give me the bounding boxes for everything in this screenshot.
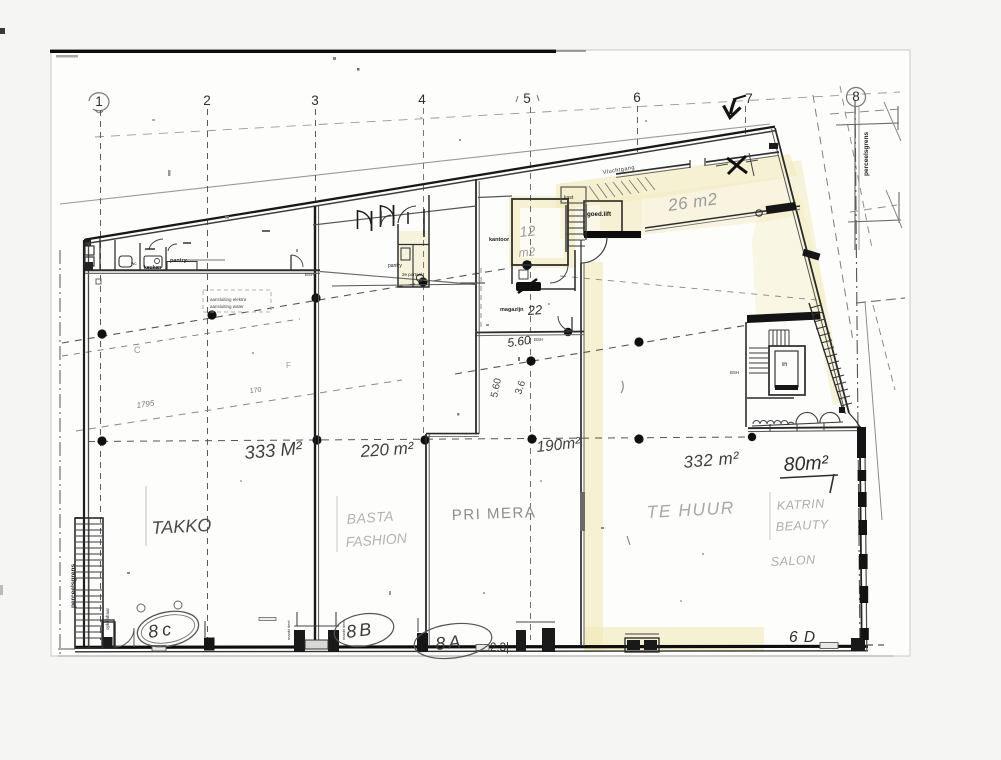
svg-text:SALON: SALON [770,553,816,569]
svg-text:maakt deel: maakt deel [286,620,291,640]
svg-text:opklimbaar: opklimbaar [105,607,110,630]
svg-text:4: 4 [418,92,426,107]
svg-text:8A: 8A [434,631,464,654]
svg-text:1: 1 [95,94,103,109]
svg-text:2: 2 [203,93,211,108]
svg-text:PRI MERA: PRI MERA [452,504,537,524]
svg-text:aansluiting elektra: aansluiting elektra [210,297,247,302]
svg-text:kantoor: kantoor [489,237,510,243]
svg-text:12: 12 [519,223,537,241]
svg-text:kast: kast [564,195,574,201]
svg-text:5: 5 [523,91,531,106]
svg-text:BSH: BSH [730,370,739,375]
svg-text:6: 6 [633,90,641,105]
svg-text:magazijn: magazijn [500,307,524,313]
svg-text:BASTA: BASTA [346,508,394,527]
svg-text:22: 22 [526,302,543,318]
svg-text:KATRIN: KATRIN [776,496,825,513]
svg-text:BEAUTY: BEAUTY [775,517,830,534]
svg-text:BSH: BSH [305,272,314,277]
svg-text:maakt deel: maakt deel [341,620,346,640]
svg-text:F: F [286,361,291,370]
svg-text:3: 3 [311,93,319,108]
svg-text:220 m²: 220 m² [359,438,415,461]
svg-text:8B: 8B [345,619,375,642]
svg-text:wc: wc [131,261,137,266]
svg-text:8: 8 [852,89,860,104]
svg-text:goed.lift: goed.lift [587,211,611,218]
svg-text:perceelsgrens: perceelsgrens [863,132,870,176]
svg-text:7: 7 [745,91,753,106]
svg-text:pantry: pantry [170,258,188,264]
svg-text:2e portaal: 2e portaal [402,272,422,277]
svg-text:lift: lift [782,362,788,368]
svg-text:C: C [134,345,141,355]
svg-text:8c: 8c [147,618,177,642]
svg-text:keuken: keuken [144,265,161,271]
svg-text:BSH: BSH [534,337,543,342]
svg-text:6 D: 6 D [789,629,816,646]
svg-text:80m²: 80m² [783,452,830,476]
svg-text:TAKKO: TAKKO [151,515,212,538]
svg-text:2.3|: 2.3| [490,642,509,654]
svg-text:pantry: pantry [388,263,402,269]
svg-text:aansluiting water: aansluiting water [210,304,244,309]
svg-text:m2: m2 [518,244,536,260]
svg-text:perceelsgrens: perceelsgrens [70,564,77,608]
svg-text:170: 170 [249,387,261,395]
